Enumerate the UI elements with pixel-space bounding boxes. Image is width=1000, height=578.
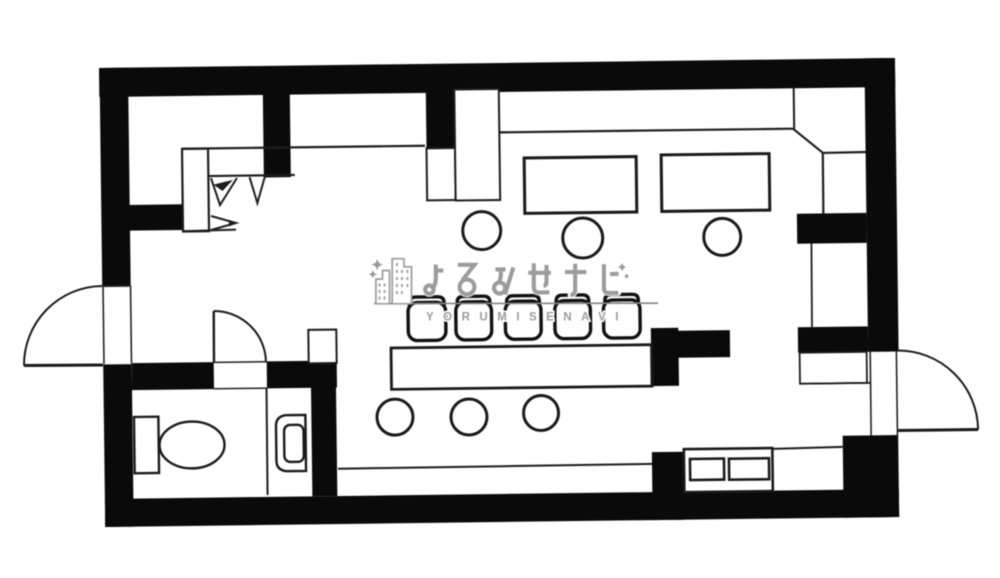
svg-text:YORUMISENAVI: YORUMISENAVI bbox=[426, 312, 628, 324]
